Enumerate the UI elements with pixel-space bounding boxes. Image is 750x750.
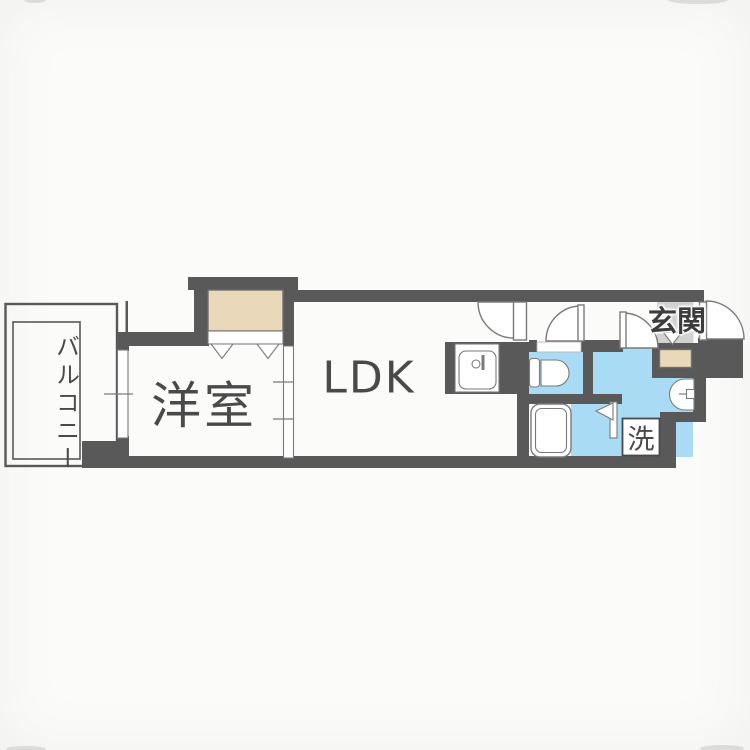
closet-door-track bbox=[208, 331, 283, 344]
wall-south-exterior bbox=[82, 456, 676, 468]
scan-artifact bbox=[6, 746, 46, 750]
toilet-bowl bbox=[541, 360, 569, 386]
hall-door-leaf bbox=[514, 302, 527, 340]
entrance-label: 玄関 bbox=[648, 298, 706, 340]
kitchen-faucet-icon bbox=[472, 360, 480, 368]
western-room-label: 洋室 bbox=[151, 366, 257, 438]
kitchen-faucet-handle bbox=[482, 355, 485, 370]
toilet-tank bbox=[530, 359, 540, 388]
wall-hall-segment-1 bbox=[529, 340, 537, 352]
toilet-door-swing-arc bbox=[546, 306, 581, 341]
ldk-label: LDK bbox=[322, 353, 415, 404]
toilet-door-leaf bbox=[578, 305, 584, 341]
floor-plan-canvas: バルコニー 洋室 LDK 玄関 洗 bbox=[0, 0, 750, 750]
closet bbox=[208, 290, 283, 331]
front-door-swing-arc bbox=[706, 301, 744, 339]
wall-northeast-mass bbox=[698, 338, 743, 378]
wall-washroom-right bbox=[660, 412, 676, 468]
wall-toilet-bottom bbox=[519, 394, 622, 404]
closet-folding-door-icon bbox=[211, 344, 233, 359]
balcony-label: バルコニー bbox=[49, 334, 84, 474]
laundry-label: 洗 bbox=[628, 418, 655, 457]
wall-balcony-partition-line bbox=[126, 301, 129, 333]
kitchen-sink bbox=[459, 351, 496, 389]
closet-folding-door-icon bbox=[257, 344, 279, 359]
wall-room-divider-upper bbox=[283, 277, 294, 346]
shoe-cabinet bbox=[660, 350, 692, 368]
wall-bathroom-left bbox=[517, 394, 529, 468]
sliding-door bbox=[284, 346, 294, 458]
bathtub-inner-rim bbox=[536, 409, 567, 453]
washroom-door-leaf bbox=[620, 312, 626, 348]
hall-door-swing-arc bbox=[478, 302, 514, 338]
toilet-door-threshold bbox=[537, 342, 581, 352]
wall-western-room-top bbox=[117, 332, 209, 346]
scan-artifact bbox=[700, 745, 744, 750]
washbasin-tap bbox=[687, 390, 695, 399]
wall-above-window bbox=[117, 332, 129, 351]
wall-north-exterior bbox=[290, 290, 704, 302]
